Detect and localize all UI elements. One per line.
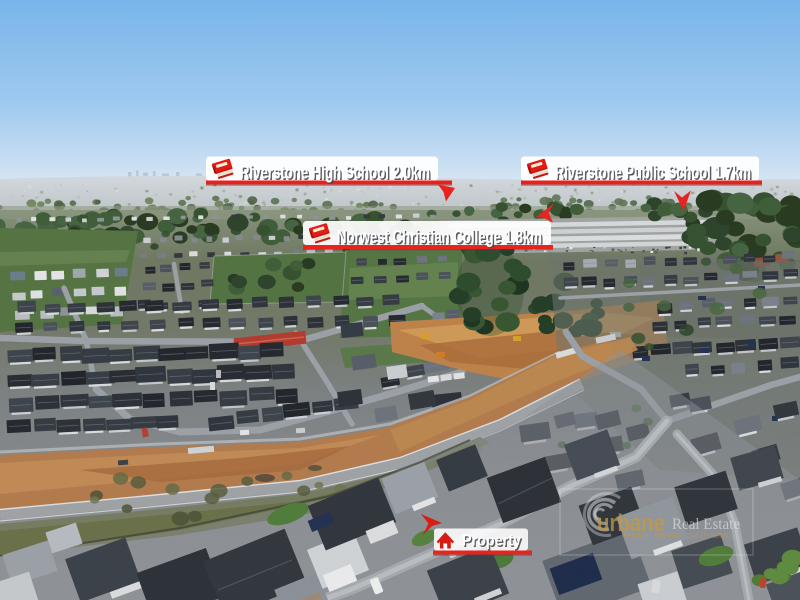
svg-text:Riverstone Public School 1.7km: Riverstone Public School 1.7km — [555, 163, 751, 183]
svg-text:Riverstone High School 2.0km: Riverstone High School 2.0km — [240, 163, 430, 183]
